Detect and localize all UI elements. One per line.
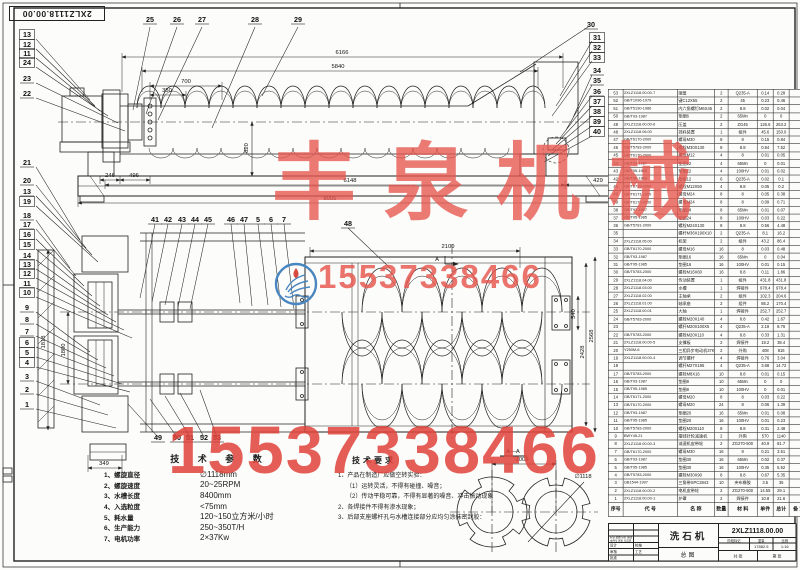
tech-requirements-block: 技术要求 1、产品在制造厂应做空转实验：（1）运转灵活，不得有碰撞、噪音；（2）… bbox=[338, 455, 573, 524]
bom-row: 212XLZ1118.00.00-5支撑板2焊接件19.238.4 bbox=[608, 339, 800, 347]
title-block-signatures: 标记 处数 分区 更改文件号 签名 年月日设计校核审核工艺批准 bbox=[609, 524, 659, 562]
bom-cell: 三角带SPC2843 bbox=[678, 479, 715, 487]
bom-cell: 0.01 bbox=[757, 167, 773, 175]
balloon-label: 34 bbox=[593, 66, 601, 75]
bom-cell: 10 bbox=[714, 479, 728, 487]
bom-cell bbox=[789, 495, 800, 503]
bom-cell: 0.76 bbox=[757, 354, 773, 362]
bom-cell: 8.1 bbox=[757, 230, 773, 238]
bom-cell: 0.05 bbox=[773, 152, 789, 160]
bom-cell bbox=[789, 378, 800, 386]
bom-cell: 0.03 bbox=[757, 393, 773, 401]
bom-cell: 螺母M12 bbox=[678, 152, 715, 160]
bom-row: 5GB/T95-1985垫圈3016100HV0.355.52 bbox=[608, 464, 800, 472]
bom-cell: 14 bbox=[608, 393, 623, 401]
bom-cell: GB/T95-1985 bbox=[623, 214, 677, 222]
bom-cell: 16 bbox=[714, 261, 728, 269]
bom-cell: 0.03 bbox=[757, 245, 773, 253]
tech-param-label: 5、耗水量 bbox=[104, 512, 200, 522]
balloon-label: 43 bbox=[178, 215, 186, 224]
bom-cell: 0.02 bbox=[773, 167, 789, 175]
balloon-label: 28 bbox=[251, 15, 259, 24]
bom-header-cell: 数量 bbox=[714, 503, 728, 517]
bom-cell: 65Mn bbox=[728, 409, 757, 417]
bom-cell: 16 bbox=[714, 409, 728, 417]
scale-value: 1:16 bbox=[773, 543, 797, 551]
bom-cell: 0.42 bbox=[757, 315, 773, 323]
balloon-label: 31 bbox=[593, 33, 601, 42]
bom-cell: 8.8 bbox=[728, 183, 757, 191]
bom-cell: 4 bbox=[714, 354, 728, 362]
bom-cell: ZG270-500 bbox=[728, 440, 757, 448]
bom-row: 15GB/T95-1985垫圈810100HV00.01 bbox=[608, 386, 800, 394]
bom-cell: 4 bbox=[714, 362, 728, 370]
balloon-label: 11 bbox=[23, 279, 31, 288]
bom-cell: 36 bbox=[608, 222, 623, 230]
bom-cell: 8 bbox=[728, 448, 757, 456]
bom-row: 18螺杆M27X1854Q235-A3.6814.72 bbox=[608, 362, 800, 370]
bom-cell: 0 bbox=[773, 113, 789, 121]
bom-cell: 1 bbox=[714, 284, 728, 292]
dimension-label: 6166 bbox=[336, 50, 349, 56]
bom-cell: 14.55 bbox=[757, 487, 773, 495]
bom-cell: 19.2 bbox=[757, 339, 773, 347]
bom-cell: 0.22 bbox=[773, 393, 789, 401]
balloon-label: 52 bbox=[200, 433, 208, 442]
balloon-label: 40 bbox=[593, 127, 601, 136]
bom-cell: 65Mn bbox=[728, 378, 757, 386]
bom-row: 12XLZ1118.00.00-1护罩2焊接件10.821.6 bbox=[608, 495, 800, 503]
bom-cell: 8 bbox=[728, 152, 757, 160]
bom-row: 50GB/T93-1987垫圈6265Mn00 bbox=[608, 113, 800, 121]
balloon-label: 38 bbox=[593, 107, 601, 116]
bom-cell: 0.14 bbox=[757, 89, 773, 97]
bom-cell: 204.6 bbox=[773, 292, 789, 300]
bom-cell: 0.23 bbox=[757, 97, 773, 105]
bom-cell: 6 bbox=[608, 456, 623, 464]
balloon-label: 36 bbox=[593, 87, 601, 96]
bom-table: 532XLZ1118.00.00-7端盖2Q235-A0.140.2852GB/… bbox=[608, 89, 796, 523]
stage-value bbox=[719, 543, 750, 551]
bom-row: 45GB/T6170-2000螺母M12480.010.05 bbox=[608, 152, 800, 160]
balloon-label: 22 bbox=[23, 89, 31, 98]
bom-cell: BWY45-21 bbox=[623, 432, 677, 440]
tech-param-row: 3、水槽长度8400mm bbox=[104, 490, 336, 501]
bom-cell: 5.35 bbox=[773, 471, 789, 479]
bom-cell: GB/T5783-2000 bbox=[623, 269, 677, 277]
bom-cell: 2 bbox=[714, 487, 728, 495]
bom-row: 30GB/T5783-2000螺栓M16X60168.80.111.86 bbox=[608, 269, 800, 277]
bom-cell bbox=[789, 432, 800, 440]
bom-cell bbox=[789, 89, 800, 97]
bom-cell bbox=[623, 323, 677, 331]
bom-cell: 大轴 bbox=[678, 308, 715, 316]
tech-params-list: 1、螺旋直径∅1118mm2、螺旋速度20~25RPM3、水槽长度8400mm4… bbox=[104, 469, 336, 543]
balloon-label: 29 bbox=[294, 15, 302, 24]
bom-cell: 65Mn bbox=[728, 159, 757, 167]
bom-header-cell: 材 料 bbox=[728, 503, 757, 517]
bom-row: 47GB/T6170-2000螺母M30880.150.84 bbox=[608, 136, 800, 144]
dimension-label: 540 bbox=[571, 309, 577, 319]
bom-cell: GB/T95-1985 bbox=[623, 464, 677, 472]
bom-cell: 100HV bbox=[728, 214, 757, 222]
bom-row: 51GB/T5190-1986内六角螺钉M6X4528.80.020.04 bbox=[608, 105, 800, 113]
bom-row: 33GB/T6170-2000螺母M161680.030.48 bbox=[608, 245, 800, 253]
bom-cell: 传动装置 bbox=[678, 276, 715, 284]
bom-cell: 21.6 bbox=[773, 495, 789, 503]
bom-cell: 20 bbox=[608, 347, 623, 355]
bom-cell: 机架 bbox=[678, 237, 715, 245]
balloon-label: 25 bbox=[146, 15, 154, 24]
balloon-leaders bbox=[36, 27, 592, 437]
bom-row: 20Y250M-6三相异步电动机37KW2外购408816 bbox=[608, 347, 800, 355]
bom-cell: 5 bbox=[608, 464, 623, 472]
bom-cell: GB/T6170-2000 bbox=[623, 152, 677, 160]
bom-cell bbox=[789, 230, 800, 238]
bom-cell: 0.38 bbox=[773, 191, 789, 199]
bom-cell: 8.8 bbox=[728, 315, 757, 323]
bom-cell: GB/T5783-2000 bbox=[623, 144, 677, 152]
bom-cell: 0.01 bbox=[757, 261, 773, 269]
bom-cell: 0.02 bbox=[757, 456, 773, 464]
tech-requirement-line: （2）传动平稳可靠，不得有显著的噪音、冲击振动现象 bbox=[338, 492, 573, 503]
balloon-label: 15 bbox=[23, 240, 31, 249]
bom-cell: Q235-A bbox=[728, 230, 757, 238]
bom-row: 10GB/T5783-2000螺栓M20X11088.80.312.48 bbox=[608, 425, 800, 433]
bom-cell: 8 bbox=[714, 144, 728, 152]
bom-cell: 垫圈12 bbox=[678, 159, 715, 167]
bom-cell bbox=[789, 393, 800, 401]
bom-row: 40GB/T6171-2000螺母M24880.050.38 bbox=[608, 191, 800, 199]
balloon-label: 45 bbox=[204, 215, 212, 224]
balloon-label: 53 bbox=[213, 433, 221, 442]
tech-param-row: 2、螺旋速度20~25RPM bbox=[104, 480, 336, 491]
bom-cell bbox=[789, 113, 800, 121]
bom-cell: 内六角螺钉M6X45 bbox=[678, 105, 715, 113]
bom-cell: 2XLZ1118.00.00-1 bbox=[623, 495, 677, 503]
bom-cell bbox=[789, 323, 800, 331]
bom-cell: 8 bbox=[728, 191, 757, 199]
bom-cell: 2XLZ1118.00.00-7 bbox=[623, 89, 677, 97]
dimension-label: 6148 bbox=[344, 178, 357, 184]
bom-cell: 170.4 bbox=[773, 300, 789, 308]
bom-row: 9BWY45-21摆线针轮减速机2外购5701140 bbox=[608, 432, 800, 440]
bom-cell bbox=[789, 261, 800, 269]
bom-row: 42GB/T96-1988垫圈126Q235-A0.020.1 bbox=[608, 175, 800, 183]
balloon-label: 6 bbox=[25, 338, 29, 347]
tech-params-block: 技 术 参 数 1、螺旋直径∅1118mm2、螺旋速度20~25RPM3、水槽长… bbox=[104, 452, 336, 543]
bom-header-cell: 单件 bbox=[757, 503, 773, 517]
bom-cell: 0.22 bbox=[773, 214, 789, 222]
bom-cell: 8 bbox=[728, 393, 757, 401]
bom-cell: GB/T5783-2000 bbox=[623, 370, 677, 378]
dimension-label: 2428 bbox=[580, 346, 586, 359]
bom-header-row: 序号代 号名 称数量材 料单件总计备 注 bbox=[608, 503, 800, 517]
bom-row: 22GB/T5783-2000螺栓M20X11048.80.331.31 bbox=[608, 331, 800, 339]
bom-cell: 16.2 bbox=[773, 230, 789, 238]
bom-row: 36GB/T5781-2000螺栓M24X13088.80.564.48 bbox=[608, 222, 800, 230]
bom-cell: GB/T5783-2000 bbox=[623, 471, 677, 479]
bom-row: 14GB/T6171-2000螺母M20880.030.22 bbox=[608, 393, 800, 401]
bom-cell: 8 bbox=[714, 198, 728, 206]
bom-cell: GB/T93-1987 bbox=[623, 206, 677, 214]
bom-cell: 垫圈8 bbox=[678, 378, 715, 386]
bom-cell: ZG45 bbox=[728, 120, 757, 128]
bom-cell: 53 bbox=[608, 89, 623, 97]
bom-cell: 35 bbox=[773, 479, 789, 487]
bom-cell: 3.51 bbox=[773, 448, 789, 456]
bom-cell: 螺杆M20X100X5 bbox=[678, 323, 715, 331]
balloon-label: 24 bbox=[23, 58, 31, 67]
bom-cell: 组件 bbox=[728, 237, 757, 245]
bom-cell: 0 bbox=[757, 378, 773, 386]
bom-cell: 252.7 bbox=[773, 308, 789, 316]
bom-cell: 挡料装置 bbox=[678, 128, 715, 136]
balloon-label: 12 bbox=[23, 269, 31, 278]
bom-cell: 2XLZ1118.00.00-2 bbox=[623, 487, 677, 495]
product-name: 洗石机 bbox=[659, 524, 719, 548]
bom-cell: 1 bbox=[714, 276, 728, 284]
bom-cell: 0.02 bbox=[757, 175, 773, 183]
bom-cell: 0.06 bbox=[757, 401, 773, 409]
bom-cell: 2 bbox=[714, 89, 728, 97]
bom-cell bbox=[789, 471, 800, 479]
bom-cell: 2 bbox=[714, 339, 728, 347]
bom-cell bbox=[789, 167, 800, 175]
bom-cell: 3.5 bbox=[757, 479, 773, 487]
bom-cell: 8 bbox=[714, 425, 728, 433]
bom-row: 3GB1544-1997三角带SPC284310夹布橡胶3.535 bbox=[608, 479, 800, 487]
balloon-label: 46 bbox=[227, 215, 235, 224]
bom-cell: 支撑板 bbox=[678, 339, 715, 347]
bom-cell bbox=[789, 347, 800, 355]
bom-cell: 焊接件 bbox=[728, 495, 757, 503]
tech-param-value: 20~25RPM bbox=[200, 480, 240, 489]
bom-cell: 45 bbox=[608, 152, 623, 160]
bom-cell: 2 bbox=[714, 113, 728, 121]
bom-cell: 100HV bbox=[728, 417, 757, 425]
bom-row: 342XLZ1118.05.00机架2组件43.286.4 bbox=[608, 237, 800, 245]
bom-cell: GB/T93-1987 bbox=[623, 378, 677, 386]
bom-cell: 组件 bbox=[728, 128, 757, 136]
bom-cell bbox=[789, 245, 800, 253]
bom-cell: 4 bbox=[714, 183, 728, 191]
bom-cell bbox=[789, 440, 800, 448]
bom-cell: 6 bbox=[714, 175, 728, 183]
bom-cell: 100HV bbox=[728, 464, 757, 472]
bom-cell: 33 bbox=[608, 245, 623, 253]
bom-cell: 18 bbox=[608, 362, 623, 370]
bom-cell: 1.67 bbox=[773, 315, 789, 323]
bom-cell: GB/T5783-2000 bbox=[623, 183, 677, 191]
bom-row: 43GB/T95-1985垫圈124100HV0.010.02 bbox=[608, 167, 800, 175]
bom-cell: 垫圈16 bbox=[678, 253, 715, 261]
bom-row: 23螺杆M20X100X54Q235-A2.198.76 bbox=[608, 323, 800, 331]
bom-cell: 4 bbox=[714, 323, 728, 331]
bom-cell: 0.04 bbox=[773, 105, 789, 113]
tech-param-value: 250~350T/H bbox=[200, 523, 244, 532]
bom-cell: 8 bbox=[714, 136, 728, 144]
bom-cell: 8.8 bbox=[728, 471, 757, 479]
bom-cell: 0.46 bbox=[773, 97, 789, 105]
balloon-label: 37 bbox=[593, 97, 601, 106]
bom-cell: GB/T93-1987 bbox=[623, 456, 677, 464]
bom-cell: 8.8 bbox=[728, 331, 757, 339]
bom-header-cell: 代 号 bbox=[623, 503, 677, 517]
bom-cell: 816 bbox=[773, 347, 789, 355]
bom-cell bbox=[789, 128, 800, 136]
bom-cell: 13 bbox=[608, 401, 623, 409]
dimension-label: 5840 bbox=[332, 64, 345, 70]
bom-cell: 垫圈6 bbox=[678, 113, 715, 121]
bom-cell: 0.15 bbox=[773, 261, 789, 269]
balloon-label: 32 bbox=[593, 43, 601, 52]
bom-cell: 85.2 bbox=[757, 300, 773, 308]
bom-cell: GB/T93-1987 bbox=[623, 113, 677, 121]
bom-row: 38GB/T93-1987垫圈24865Mn0.010.07 bbox=[608, 206, 800, 214]
bom-row: 39GB/T6170-2000螺母M24880.090.71 bbox=[608, 198, 800, 206]
drawing-number: 2XLZ1118.00.00 bbox=[719, 524, 797, 538]
bom-row: 532XLZ1118.00.00-7端盖2Q235-A0.140.28 bbox=[608, 89, 800, 97]
weight-value: 17882.5 bbox=[750, 543, 774, 551]
bom-cell bbox=[789, 144, 800, 152]
bom-cell: 0.07 bbox=[773, 206, 789, 214]
bom-cell: 8 bbox=[728, 245, 757, 253]
bom-cell bbox=[789, 276, 800, 284]
bom-cell bbox=[789, 269, 800, 277]
bom-cell: 16 bbox=[714, 456, 728, 464]
bom-row: 192XLZ1118.00.00-4调节螺杆4焊接件0.763.04 bbox=[608, 354, 800, 362]
bom-cell: 2XLZ1118.00.00-6 bbox=[623, 120, 677, 128]
bom-cell: 2XLZ1118.04.00 bbox=[623, 276, 677, 284]
dimension-label: 2568 bbox=[589, 330, 595, 343]
balloon-label: 18 bbox=[23, 211, 31, 220]
sheet-number: 第 张 bbox=[758, 551, 797, 562]
bom-cell: 组件 bbox=[728, 300, 757, 308]
bom-cell: 46 bbox=[608, 144, 623, 152]
balloon-label: 4 bbox=[25, 358, 29, 367]
balloon-label: 7 bbox=[282, 215, 286, 224]
bom-cell: 2XLZ1118.00.01 bbox=[623, 308, 677, 316]
bom-cell: 0.01 bbox=[757, 409, 773, 417]
bom-cell: GB/T95-1985 bbox=[623, 417, 677, 425]
bom-cell: 压盖 bbox=[678, 120, 715, 128]
bom-cell bbox=[789, 136, 800, 144]
bom-cell: 9 bbox=[608, 432, 623, 440]
bom-cell: 键C12X55 bbox=[678, 97, 715, 105]
balloon-label: 13 bbox=[23, 187, 31, 196]
bom-cell: 8.76 bbox=[773, 323, 789, 331]
bom-cell: 护罩 bbox=[678, 495, 715, 503]
bom-cell: 8.8 bbox=[728, 105, 757, 113]
bom-cell bbox=[789, 362, 800, 370]
tech-param-row: 6、生产能力250~350T/H bbox=[104, 522, 336, 533]
bom-cell bbox=[789, 354, 800, 362]
bom-cell: 2 bbox=[714, 495, 728, 503]
bom-cell: 0 bbox=[757, 253, 773, 261]
bom-cell: 24 bbox=[714, 401, 728, 409]
bom-cell: 2XLZ1118.00.00-4 bbox=[623, 354, 677, 362]
bom-cell: 2 bbox=[714, 347, 728, 355]
balloon-label: 21 bbox=[23, 158, 31, 167]
bom-row: 32GB/T93-1987垫圈161665Mn00.04 bbox=[608, 253, 800, 261]
bom-cell: 摆线针轮减速机 bbox=[678, 432, 715, 440]
dimension-lines bbox=[48, 57, 612, 468]
bom-cell: 8 bbox=[714, 393, 728, 401]
bom-cell: GB/T6171-2000 bbox=[623, 191, 677, 199]
bom-cell: 0.05 bbox=[757, 183, 773, 191]
bom-cell: 组件 bbox=[728, 292, 757, 300]
balloon-label: 8 bbox=[25, 315, 29, 324]
tech-param-label: 7、电机功率 bbox=[104, 533, 200, 543]
bom-cell bbox=[789, 175, 800, 183]
balloon-label: 9 bbox=[25, 303, 29, 312]
bom-cell: 螺杆M27X185 bbox=[678, 362, 715, 370]
bom-cell: 螺栓M12X50 bbox=[678, 183, 715, 191]
bom-cell: 垫圈8 bbox=[678, 386, 715, 394]
dimension-label: 1818 bbox=[41, 336, 47, 349]
bom-cell bbox=[789, 214, 800, 222]
bom-cell: GB/T93-1987 bbox=[623, 159, 677, 167]
bom-cell: 焊接件 bbox=[728, 284, 757, 292]
balloon-label: 12 bbox=[23, 40, 31, 49]
bom-cell: 夹布橡胶 bbox=[728, 479, 757, 487]
dimension-label: 2100 bbox=[442, 244, 455, 250]
bom-cell bbox=[789, 222, 800, 230]
bom-cell: 16 bbox=[714, 417, 728, 425]
bom-cell: Q235-A bbox=[728, 89, 757, 97]
tech-param-value: 2×37Kw bbox=[200, 533, 229, 542]
title-block: 标记 处数 分区 更改文件号 签名 年月日设计校核审核工艺批准 洗石机 总图 2… bbox=[608, 523, 796, 561]
bom-cell: 0 bbox=[757, 113, 773, 121]
bom-cell bbox=[789, 315, 800, 323]
balloon-label: 3 bbox=[25, 372, 29, 381]
bom-cell: 螺母M20 bbox=[678, 393, 715, 401]
bom-cell: 30 bbox=[608, 269, 623, 277]
bom-cell: 0.04 bbox=[773, 253, 789, 261]
bom-cell: 螺栓M24X130 bbox=[678, 222, 715, 230]
bom-cell: 螺母M30 bbox=[678, 448, 715, 456]
balloon-label: 41 bbox=[151, 215, 159, 224]
bom-cell: 16 bbox=[714, 253, 728, 261]
drawing-sheet: 2526272829303132333435363738394013121124… bbox=[0, 0, 800, 570]
balloon-label: 50 bbox=[173, 433, 181, 442]
bom-cell: 8 bbox=[728, 136, 757, 144]
bom-cell: 16 bbox=[714, 245, 728, 253]
dimension-label: 246 bbox=[105, 173, 115, 179]
bom-cell: 0.15 bbox=[757, 136, 773, 144]
bom-cell: 11 bbox=[608, 417, 623, 425]
bom-cell: 4 bbox=[714, 315, 728, 323]
bom-cell: 1140 bbox=[773, 432, 789, 440]
tech-requirement-line: （1）运转灵活，不得有碰撞、噪音； bbox=[338, 482, 573, 493]
bom-cell: 螺栓M30X90 bbox=[678, 471, 715, 479]
bom-row: 41GB/T5783-2000螺栓M12X5048.80.050.2 bbox=[608, 183, 800, 191]
bom-cell bbox=[789, 487, 800, 495]
bom-cell: 86.4 bbox=[773, 237, 789, 245]
bom-cell: 螺栓M20X110 bbox=[678, 425, 715, 433]
bom-cell: 0.02 bbox=[757, 105, 773, 113]
bom-cell: 外购 bbox=[728, 432, 757, 440]
dimension-label: 429 bbox=[593, 178, 603, 184]
bom-cell: 38 bbox=[608, 206, 623, 214]
bom-cell bbox=[789, 183, 800, 191]
bom-cell: 焊接件 bbox=[728, 339, 757, 347]
bom-cell: 40.9 bbox=[757, 440, 773, 448]
bom-cell: 螺栓M30X130 bbox=[678, 144, 715, 152]
bom-cell: 2 bbox=[714, 230, 728, 238]
bom-cell: 2 bbox=[608, 487, 623, 495]
